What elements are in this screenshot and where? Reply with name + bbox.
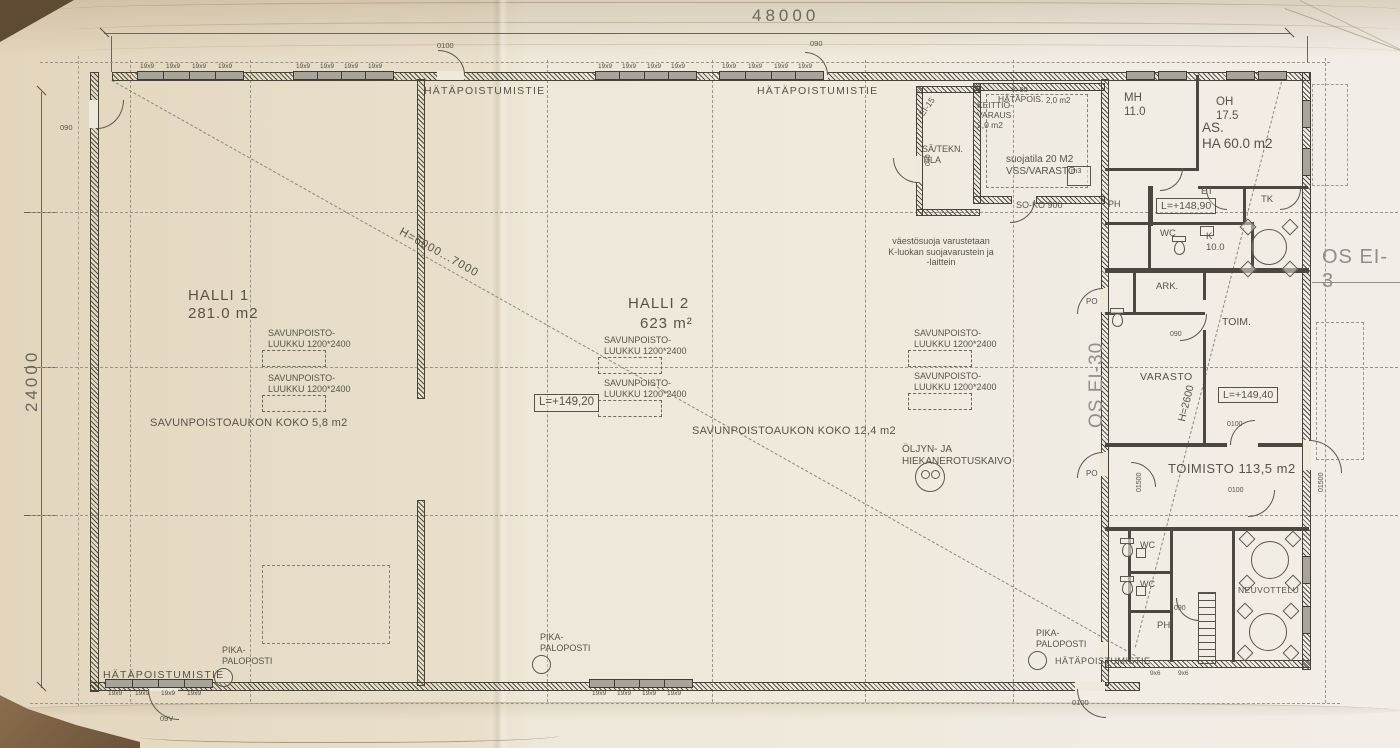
tekn-wall-bottom <box>916 209 980 216</box>
window-label: 19x9 <box>135 690 149 698</box>
window-top <box>215 71 244 80</box>
firewall-class: OS EI-30 <box>1086 342 1108 428</box>
fire-post-label: PIKA- PALOPOSTI <box>540 632 590 653</box>
window-top <box>719 71 748 80</box>
door-090-left: 090 <box>60 124 73 133</box>
door-0100-varasto: 0100 <box>1227 421 1243 429</box>
wall-wc-bottom <box>1128 610 1173 613</box>
room-wc-1: WC <box>1140 540 1155 551</box>
toilet-bowl <box>1112 313 1123 327</box>
room-halli1: HALLI 1 281.0 m2 <box>188 287 259 322</box>
fire-post-circle <box>1028 651 1047 670</box>
window-top-apartment <box>1126 71 1155 80</box>
smoke-vent-box <box>262 395 326 412</box>
window-label: 19x9 <box>368 63 382 71</box>
smoke-vent-box <box>908 350 972 367</box>
room-neuvottelu: NEUVOTTELU <box>1238 585 1299 595</box>
wall-varasto-right-a <box>1203 268 1206 300</box>
window-label: 19x9 <box>296 63 310 71</box>
soko: SO-KO 900 <box>1016 200 1063 211</box>
window-label: 19x9 <box>774 63 788 71</box>
window-label: 19x9 <box>617 690 631 698</box>
grid-line-h <box>30 703 1340 704</box>
wall-wc-divider <box>1128 571 1173 574</box>
wall-varasto-right-b <box>1203 330 1206 445</box>
window-top-apartment <box>1226 71 1255 80</box>
window-9x6-b: 9x6 <box>1178 670 1188 678</box>
door-090-ph: 090 <box>1174 605 1186 613</box>
tekn-wall-top <box>916 86 980 93</box>
vss-wall-bottom-a <box>973 196 1012 204</box>
wall-toimisto-top-a <box>1105 443 1227 447</box>
dimension-ext-left <box>111 36 112 72</box>
room-et: ET <box>1201 186 1213 197</box>
smoke-area-1: SAVUNPOISTOAUKON KOKO 5,8 m2 <box>150 417 348 430</box>
door-090-top: 090 <box>810 40 823 49</box>
room-mh: MH 11.0 <box>1124 92 1146 119</box>
window-top <box>668 71 697 80</box>
future-opening-halli1 <box>262 565 390 644</box>
grid-line-v <box>712 60 713 702</box>
wall-mh-bottom <box>1105 168 1199 171</box>
exit-bottom-left: HÄTÄPOISTUMISTIE <box>103 669 224 681</box>
toilet-bowl <box>1174 241 1185 255</box>
window-label: 19x9 <box>108 690 122 698</box>
room-k: K 10.0 <box>1206 231 1225 253</box>
window-label: 19x9 <box>192 63 206 71</box>
entrance-porch <box>1316 322 1364 460</box>
keittio-varaus: KEITTIÖ- VARAUS 2,0 m2 <box>977 100 1013 130</box>
meeting-table-1 <box>1251 541 1289 579</box>
toilet-bowl <box>1122 543 1133 557</box>
window-label: 19x9 <box>161 690 175 698</box>
grid-line-v <box>547 60 548 702</box>
oil-separator: ÖLJYN- JA HIEKANEROTUSKAIVO <box>902 444 1011 468</box>
window-label: 19x9 <box>344 63 358 71</box>
grid-line-v <box>865 60 866 702</box>
window-label: 19x9 <box>218 63 232 71</box>
fire-post-label: PIKA- PALOPOSTI <box>1036 628 1086 649</box>
grid-line-h <box>30 367 1398 368</box>
window-top <box>137 71 166 80</box>
window-label: 19x9 <box>187 690 201 698</box>
stairs <box>1198 592 1216 664</box>
wall-bath-divider <box>1148 186 1151 268</box>
door-0100-bottom: 0100 <box>1072 699 1089 708</box>
wall-wc-right <box>1170 531 1173 662</box>
window-label: 19x9 <box>667 690 681 698</box>
wall-ph-neuvottelu <box>1232 531 1235 662</box>
window-right <box>1302 606 1311 634</box>
exit-bottom-right: HÄTÄPOISTUMISTIE <box>1055 656 1151 667</box>
smoke-area-2: SAVUNPOISTOAUKON KOKO 12,4 m2 <box>692 425 896 438</box>
door-090-tekn: 090 <box>925 154 933 166</box>
room-tk: TK <box>1261 194 1273 205</box>
wall-ark-left <box>1133 273 1136 315</box>
grid-line-v <box>78 56 79 706</box>
window-label: 19x9 <box>592 690 606 698</box>
wall-toimisto-top-b <box>1258 443 1309 447</box>
window-label: 19x9 <box>166 63 180 71</box>
window-top <box>163 71 192 80</box>
door-01500-b: 01500 <box>1318 473 1326 492</box>
level-office: L=+149,40 <box>1218 387 1278 403</box>
window-top <box>189 71 218 80</box>
door-09v-bottom: 09V <box>160 715 173 724</box>
exit-top-left: HÄTÄPOISTUMISTIE <box>424 85 545 97</box>
door-01500-a: 01500 <box>1136 473 1144 492</box>
room-wc-top: WC <box>1160 228 1176 239</box>
level-center: L=+149,20 <box>534 394 599 412</box>
grid-line-v <box>250 60 251 702</box>
smoke-vent-label: SAVUNPOISTO- LUUKKU 1200*2400 <box>604 378 687 399</box>
smoke-vent-label: SAVUNPOISTO- LUUKKU 1200*2400 <box>268 373 351 394</box>
room-wc-2: WC <box>1140 579 1155 590</box>
window-label: 19x9 <box>748 63 762 71</box>
vss-hatch-area: 2,0 m2 <box>1046 96 1070 105</box>
room-ph-top: PH <box>1108 199 1121 210</box>
smoke-vent-box <box>598 400 662 417</box>
window-label: 19x9 <box>798 63 812 71</box>
wall-wc-k-top <box>1105 222 1253 225</box>
vss-room: suojatila 20 M2 VSS/VARASTO <box>1006 154 1076 178</box>
outer-wall-left <box>90 72 99 692</box>
height-note-halls: H=6000...7000 <box>396 226 480 281</box>
dimension-line-top <box>104 33 1290 34</box>
vss-m3: m3 <box>1071 167 1081 176</box>
terrace-oh <box>1312 84 1348 186</box>
room-ph-bottom: PH <box>1157 620 1170 631</box>
smoke-vent-label: SAVUNPOISTO- LUUKKU 1200*2400 <box>914 371 997 392</box>
room-toimisto: TOIMISTO 113,5 m2 <box>1168 461 1296 476</box>
room-toim: TOIM. <box>1222 316 1251 328</box>
door-0100-toimisto: 0100 <box>1228 487 1244 495</box>
hall-divider-wall-lower <box>417 500 425 686</box>
oil-separator-inner <box>931 470 940 479</box>
window-top <box>365 71 394 80</box>
window-top <box>745 71 774 80</box>
kitchen-table <box>1251 229 1287 265</box>
door-0100-top: 0100 <box>437 42 454 51</box>
window-label: 19x9 <box>320 63 334 71</box>
floor-plan-photo: 4800024000HALLI 1 281.0 m2HALLI 2623 m²S… <box>0 0 1400 748</box>
toilet-bowl <box>1122 581 1133 595</box>
grid-line-h <box>30 515 1398 516</box>
smoke-vent-label: SAVUNPOISTO- LUUKKU 1200*2400 <box>914 328 997 349</box>
window-right <box>1302 556 1311 584</box>
vss-wall-top <box>973 83 1105 91</box>
room-halli2-area: 623 m² <box>640 315 693 333</box>
fire-post-label: PIKA- PALOPOSTI <box>222 645 272 666</box>
grid-line-v <box>130 60 131 702</box>
door-po-1: PO <box>1086 297 1098 306</box>
door-po-2: PO <box>1086 469 1098 478</box>
window-9x6-a: 9x6 <box>1150 670 1160 678</box>
window-label: 19x9 <box>598 63 612 71</box>
exit-top-right: HÄTÄPOISTUMISTIE <box>757 85 878 97</box>
window-label: 19x9 <box>671 63 685 71</box>
window-label: 19x9 <box>647 63 661 71</box>
room-varasto: VARASTO <box>1140 371 1193 383</box>
window-right <box>1302 148 1311 176</box>
wall-toimisto-bottom <box>1105 527 1309 531</box>
wall-mh-oh <box>1196 75 1199 171</box>
vss-note: väestösuoja varustetaan K-luokan suojava… <box>876 236 1006 268</box>
door-090-toim: 090 <box>1170 331 1182 339</box>
fire-post-circle <box>532 655 551 674</box>
smoke-vent-label: SAVUNPOISTO- LUUKKU 1200*2400 <box>268 328 351 349</box>
meeting-table-2 <box>1249 613 1287 651</box>
window-top-apartment <box>1158 71 1187 80</box>
dim-width: 48000 <box>752 6 819 26</box>
dim-height: 24000 <box>22 350 42 412</box>
smoke-vent-box <box>262 350 326 367</box>
plan-annotations: 4800024000HALLI 1 281.0 m2HALLI 2623 m²S… <box>0 0 1400 748</box>
smoke-vent-box <box>598 357 662 374</box>
room-halli2: HALLI 2 <box>628 295 689 313</box>
window-bottom <box>664 679 693 688</box>
window-label: 19x9 <box>140 63 154 71</box>
section-class: OS EI-3 <box>1322 246 1400 293</box>
window-label: 19x9 <box>642 690 656 698</box>
window-label: 19x9 <box>622 63 636 71</box>
window-top-apartment <box>1258 71 1287 80</box>
room-as: AS. HA 60.0 m2 <box>1202 120 1273 152</box>
level-apartment: L=+148,90 <box>1156 198 1216 214</box>
window-right <box>1302 100 1311 128</box>
smoke-vent-box <box>908 393 972 410</box>
smoke-vent-label: SAVUNPOISTO- LUUKKU 1200*2400 <box>604 335 687 356</box>
dimension-ext-right <box>1307 36 1308 62</box>
oil-separator-inner <box>921 470 930 479</box>
window-label: 19x9 <box>722 63 736 71</box>
room-ark: ARK. <box>1156 281 1178 292</box>
window-top <box>795 71 824 80</box>
